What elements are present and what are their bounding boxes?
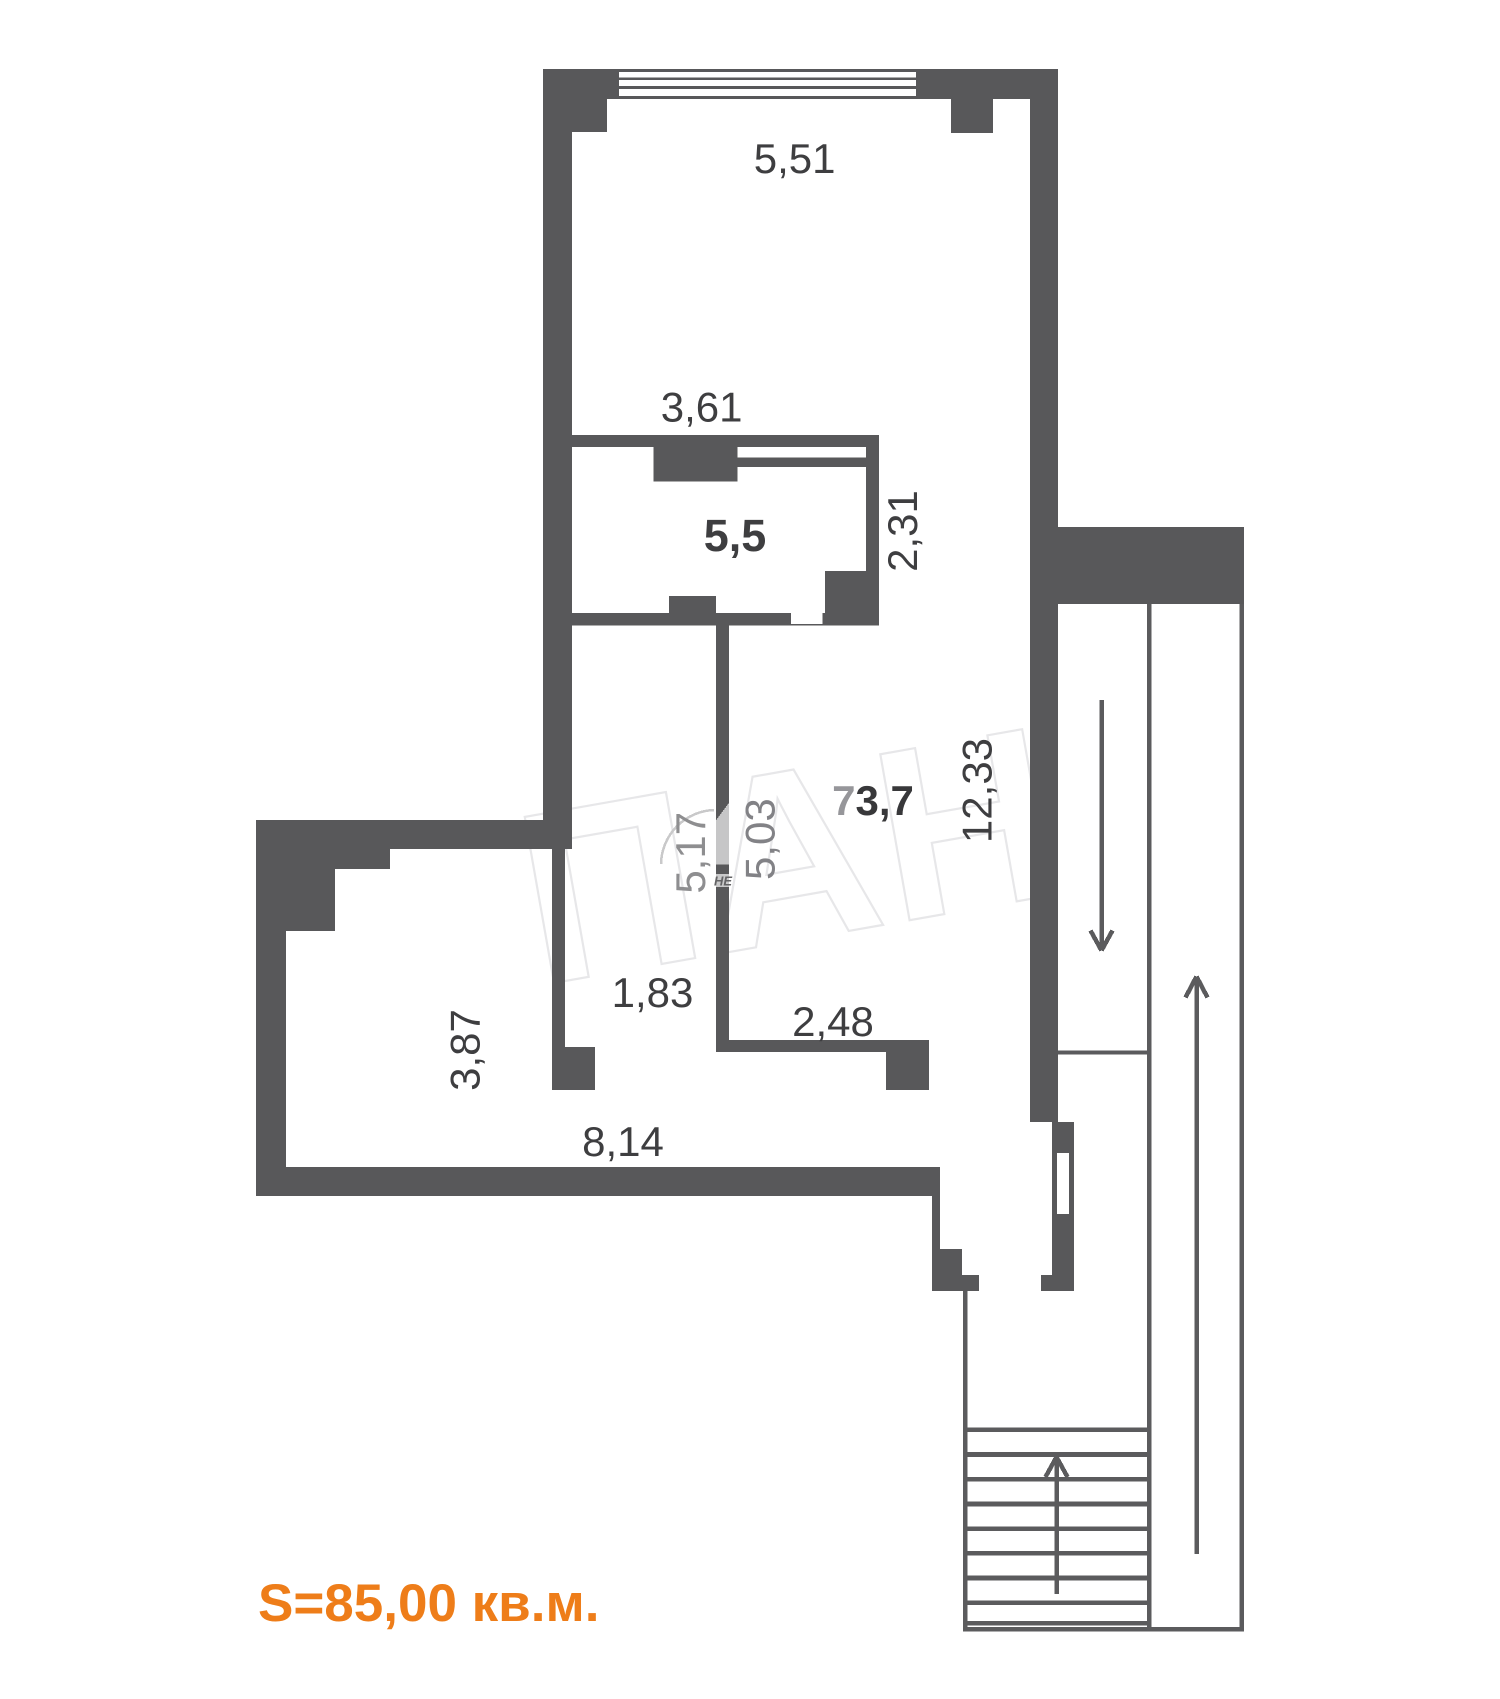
svg-text:8,14: 8,14 bbox=[582, 1118, 664, 1165]
svg-text:5,17: 5,17 bbox=[667, 812, 714, 894]
svg-text:2,48: 2,48 bbox=[792, 998, 874, 1045]
svg-text:1,83: 1,83 bbox=[612, 969, 694, 1016]
svg-text:2,31: 2,31 bbox=[879, 490, 926, 572]
svg-text:12,33: 12,33 bbox=[954, 738, 1001, 843]
svg-text:5,51: 5,51 bbox=[754, 135, 836, 182]
svg-text:S=85,00 кв.м.: S=85,00 кв.м. bbox=[258, 1574, 599, 1633]
svg-text:3,61: 3,61 bbox=[661, 384, 743, 431]
svg-text:3,87: 3,87 bbox=[442, 1009, 489, 1091]
svg-text:НЕ: НЕ bbox=[714, 874, 732, 889]
svg-text:73,7: 73,7 bbox=[832, 777, 914, 824]
svg-text:5,5: 5,5 bbox=[704, 510, 767, 561]
svg-text:5,03: 5,03 bbox=[736, 798, 783, 880]
